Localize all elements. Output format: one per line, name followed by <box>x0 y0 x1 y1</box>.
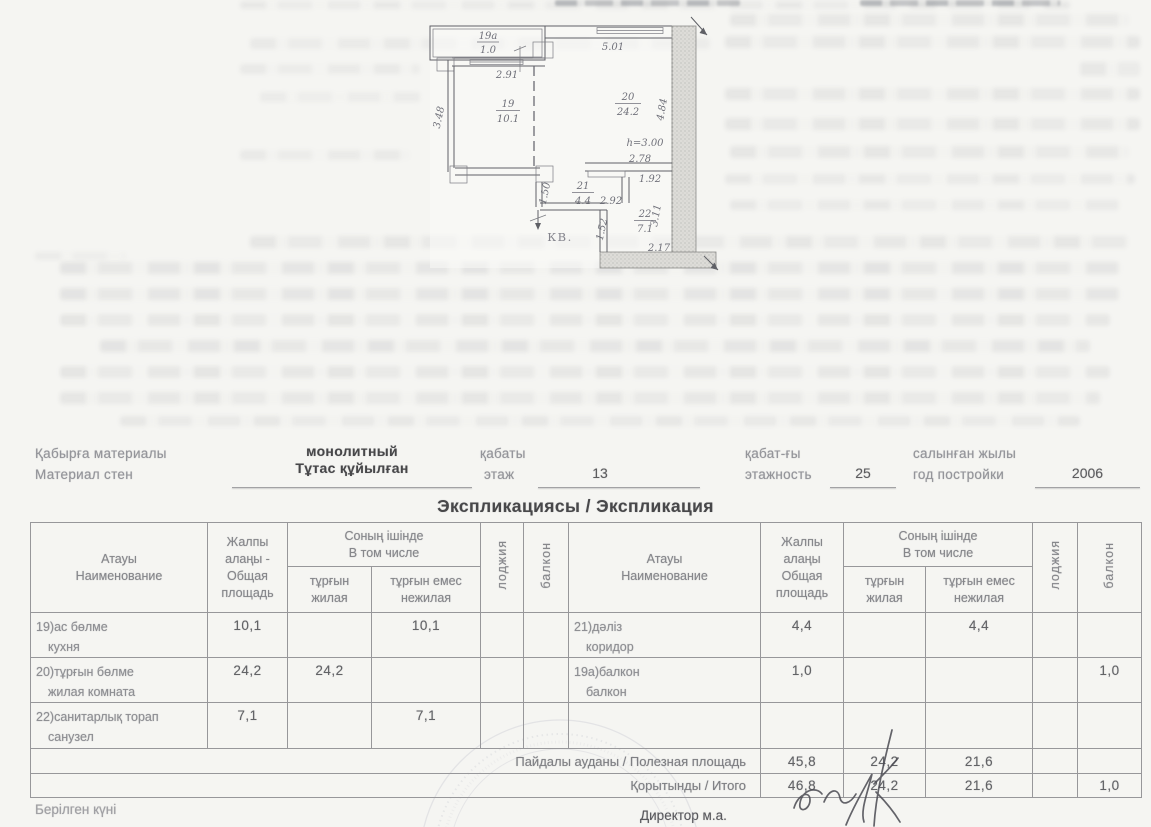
dim-1-92: 1.92 <box>639 174 661 185</box>
dim-2-78: 2.78 <box>628 154 651 165</box>
wall-material-label-kk: Қабырға материалы <box>35 443 167 464</box>
table-cell: 4,4 <box>926 613 1033 658</box>
table-cell: 21,6 <box>926 774 1033 798</box>
header-nonliving-right: тұрғын емес нежилая <box>926 567 1033 613</box>
bleedthrough-line <box>60 366 1110 378</box>
room-19a-number: 19а <box>479 31 498 42</box>
floor-block: қабаты этаж <box>480 443 526 485</box>
table-cell: 7,1 <box>372 703 481 749</box>
header-balcony-right: балкон <box>1078 523 1142 613</box>
table-cell: 20)тұрғын бөлмежилая комната <box>31 658 208 703</box>
explication-table: Атауы Наименование Жалпы алаңы - Общая п… <box>30 522 1142 798</box>
bleedthrough-line <box>120 416 1080 426</box>
room-21-area: 4.4 <box>574 196 591 207</box>
floors-label-kk: қабат-ғы <box>745 443 812 464</box>
table-row: 22)санитарлық торапсанузел 7,1 7,1 <box>31 703 1142 749</box>
floors-count-block: қабат-ғы этажность <box>745 443 812 485</box>
room-22-number: 22 <box>638 209 652 220</box>
table-cell: 1,0 <box>761 658 844 703</box>
floor-plan: 19а 1.0 19 10.1 20 24.2 21 4.4 22 7.1 2.… <box>408 14 728 276</box>
wall-material-value-ru: монолитный <box>232 443 472 459</box>
header-name-right: Атауы Наименование <box>569 523 761 613</box>
header-loggia-right: лоджия <box>1033 523 1078 613</box>
year-label-ru: год постройки <box>913 464 1016 485</box>
table-cell <box>524 658 569 703</box>
bleedthrough-line <box>725 36 1140 48</box>
floor-label-kk: қабаты <box>480 443 526 464</box>
header-name-left: Атауы Наименование <box>31 523 208 613</box>
table-cell <box>844 613 926 658</box>
bleedthrough-line <box>260 92 420 102</box>
bleedthrough-line <box>60 392 1100 404</box>
table-header-row-1: Атауы Наименование Жалпы алаңы - Общая п… <box>31 523 1142 567</box>
header-loggia-left: лоджия <box>481 523 524 613</box>
cutoff-text-fragment <box>860 0 1060 6</box>
floor-underline <box>538 487 700 488</box>
bleedthrough-line <box>60 288 1120 300</box>
room-20-area: 24.2 <box>616 107 639 118</box>
header-including-right: Соның ішінде В том числе <box>844 523 1033 567</box>
table-cell: 1,0 <box>1078 658 1142 703</box>
header-living-right: тұрғын жилая <box>844 567 926 613</box>
floors-label-ru: этажность <box>745 464 812 485</box>
table-cell <box>481 658 524 703</box>
bleedthrough-line <box>725 88 1140 100</box>
bleedthrough-line <box>35 252 125 260</box>
useful-area-row: Пайдалы ауданы / Полезная площадь 45,8 2… <box>31 749 1142 774</box>
table-cell <box>1033 703 1078 749</box>
table-row: 19)ас бөлмекухня 10,1 10,1 21)дәлізкорид… <box>31 613 1142 658</box>
height-note: h=3.00 <box>626 138 664 149</box>
table-cell: 22)санитарлық торапсанузел <box>31 703 208 749</box>
bleedthrough-line <box>240 64 420 74</box>
table-cell <box>524 703 569 749</box>
wall-material-label-ru: Материал стен <box>35 464 167 485</box>
bleedthrough-line <box>60 314 1110 326</box>
table-cell: 1,0 <box>1078 774 1142 798</box>
bleedthrough-line <box>1080 62 1140 76</box>
bleedthrough-line <box>730 200 1120 210</box>
table-cell: 19а)балконбалкон <box>569 658 761 703</box>
useful-area-label: Пайдалы ауданы / Полезная площадь <box>31 749 761 774</box>
wall-material-value-kk: Тұтас құйылған <box>232 460 472 476</box>
table-cell <box>288 613 372 658</box>
table-cell: 7,1 <box>208 703 288 749</box>
room-19a-area: 1.0 <box>480 45 497 56</box>
table-cell <box>1078 703 1142 749</box>
header-balcony-left: балкон <box>524 523 569 613</box>
table-cell: 24,2 <box>208 658 288 703</box>
bleedthrough-line <box>100 340 1090 352</box>
year-label-kk: салынған жылы <box>913 443 1016 464</box>
table-cell <box>524 613 569 658</box>
table-cell <box>1078 613 1142 658</box>
room-20-number: 20 <box>621 92 635 103</box>
room-21-number: 21 <box>576 181 590 192</box>
table-cell: 24,2 <box>288 658 372 703</box>
table-cell <box>481 613 524 658</box>
bleedthrough-line <box>725 118 1140 130</box>
year-underline <box>1035 487 1140 488</box>
cutoff-text-fragment <box>555 0 740 6</box>
wall-material-underline <box>232 487 472 488</box>
director-signature <box>788 728 928 827</box>
header-living-left: тұрғын жилая <box>288 567 372 613</box>
bleedthrough-line <box>730 146 1130 158</box>
table-cell <box>926 658 1033 703</box>
year-block: салынған жылы год постройки <box>913 443 1016 485</box>
wall-material-block: Қабырға материалы Материал стен <box>35 443 167 485</box>
table-cell: 21)дәлізкоридор <box>569 613 761 658</box>
table-cell: 19)ас бөлмекухня <box>31 613 208 658</box>
floor-label-ru: этаж <box>480 464 526 485</box>
scanned-tech-passport-page: { "info": { "wall_label_kk": "Қабырға ма… <box>0 0 1151 827</box>
table-cell <box>1033 658 1078 703</box>
wall-material-value: монолитный Тұтас құйылған <box>232 443 472 476</box>
room-19-number: 19 <box>502 99 515 110</box>
table-cell: 4,4 <box>761 613 844 658</box>
floors-underline <box>830 487 896 488</box>
table-cell <box>926 703 1033 749</box>
dim-2-91: 2.91 <box>495 70 518 81</box>
bleedthrough-line <box>240 150 410 160</box>
header-including-left: Соның ішінде В том числе <box>288 523 481 567</box>
header-total-left: Жалпы алаңы - Общая площадь <box>208 523 288 613</box>
dim-5-01: 5.01 <box>602 42 624 53</box>
table-cell <box>1033 774 1078 798</box>
header-nonliving-left: тұрғын емес нежилая <box>372 567 481 613</box>
table-cell: 21,6 <box>926 749 1033 774</box>
floors-value: 25 <box>832 465 894 481</box>
dim-2-17: 2.17 <box>647 243 671 254</box>
issue-date-label: Берілген күні <box>35 802 116 817</box>
dim-2-92: 2.92 <box>599 196 622 207</box>
grand-total-label: Қорытынды / Итого <box>31 774 761 798</box>
floor-value: 13 <box>540 465 660 481</box>
table-cell <box>569 703 761 749</box>
table-cell: 10,1 <box>208 613 288 658</box>
table-cell <box>481 703 524 749</box>
table-cell: 10,1 <box>372 613 481 658</box>
bleedthrough-line <box>730 14 1130 26</box>
table-cell <box>844 658 926 703</box>
year-value: 2006 <box>1035 465 1140 481</box>
table-cell <box>372 658 481 703</box>
apartment-label: КВ. <box>547 230 573 244</box>
grand-total-row: Қорытынды / Итого 46,8 24,2 21,6 1,0 <box>31 774 1142 798</box>
bleedthrough-line <box>725 174 1135 184</box>
page-title: Экспликациясы / Экспликация <box>0 496 1151 517</box>
header-total-right: Жалпы алаңы Общая площадь <box>761 523 844 613</box>
table-cell <box>288 703 372 749</box>
table-cell <box>1078 749 1142 774</box>
table-cell <box>1033 749 1078 774</box>
table-cell <box>1033 613 1078 658</box>
room-19-area: 10.1 <box>497 114 519 125</box>
table-row: 20)тұрғын бөлмежилая комната 24,2 24,2 1… <box>31 658 1142 703</box>
